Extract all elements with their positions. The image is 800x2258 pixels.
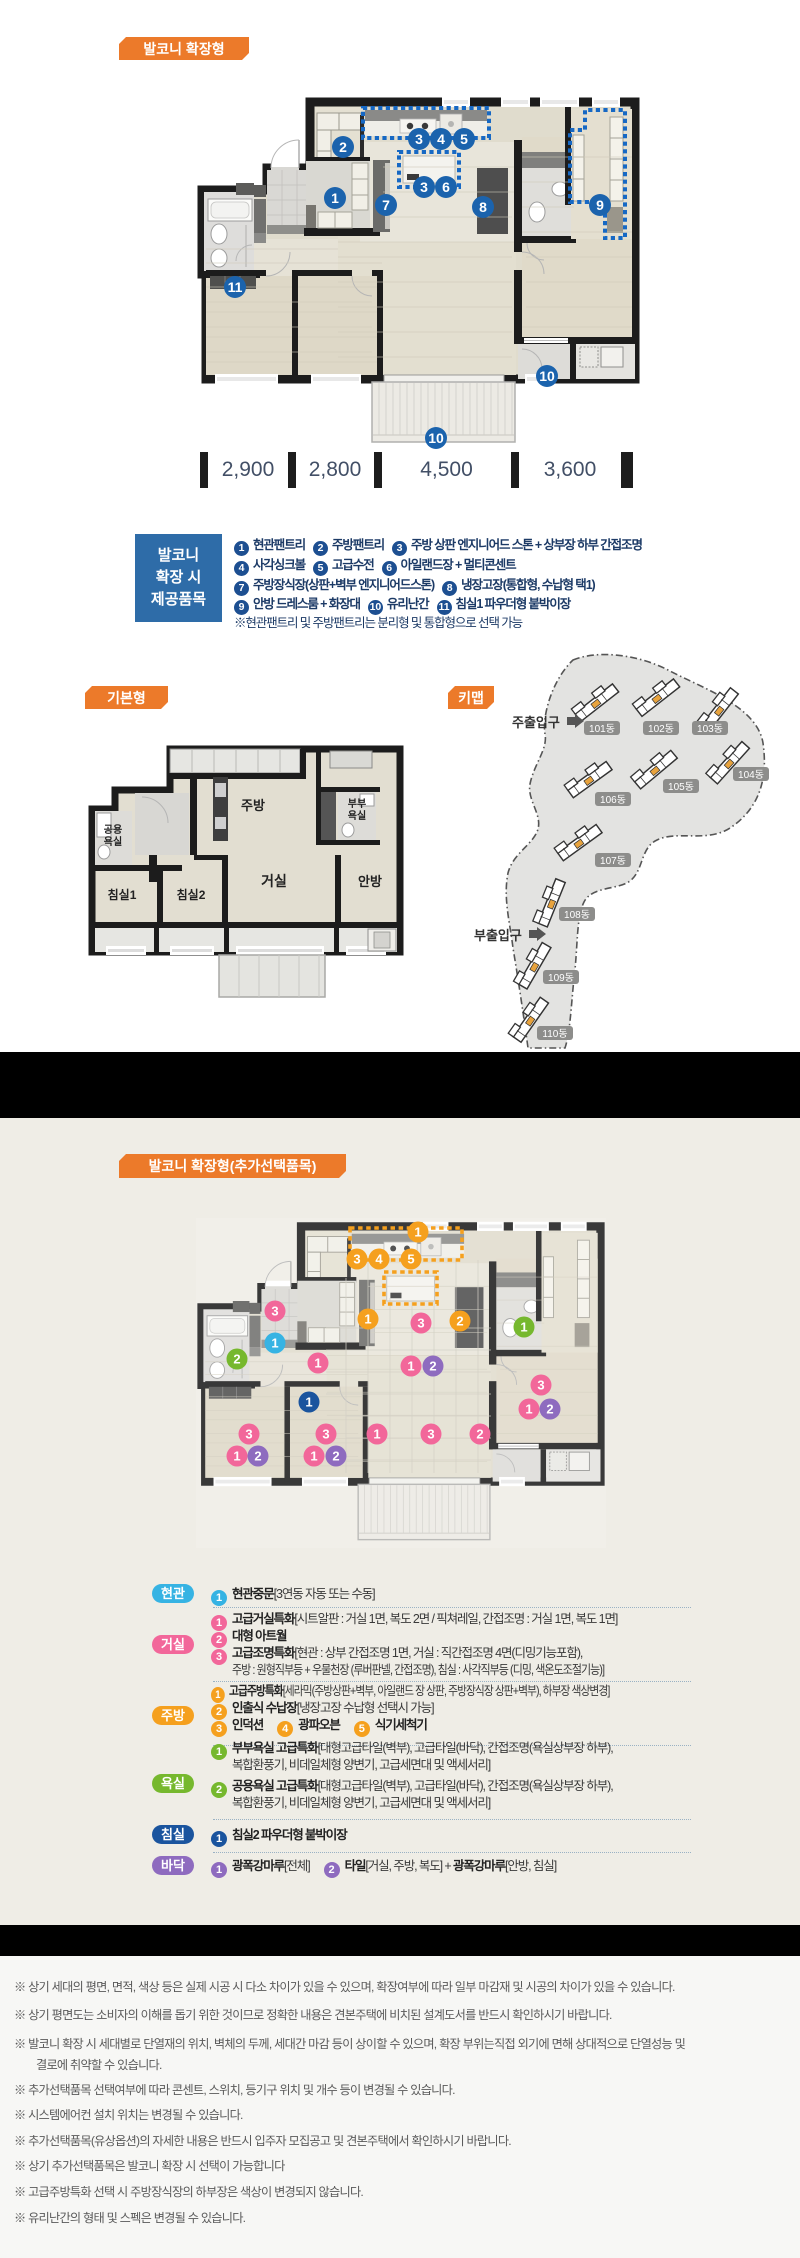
svg-text:3: 3 — [415, 131, 423, 147]
svg-text:101동: 101동 — [589, 723, 615, 735]
svg-text:102동: 102동 — [648, 723, 674, 735]
svg-text:주출입구: 주출입구 — [512, 715, 560, 730]
svg-text:침실2: 침실2 — [177, 887, 206, 902]
svg-text:110동: 110동 — [542, 1028, 567, 1040]
svg-text:공용: 공용 — [104, 824, 122, 836]
svg-text:5: 5 — [460, 131, 468, 147]
svg-text:1: 1 — [331, 190, 339, 206]
svg-text:9: 9 — [596, 197, 604, 213]
svg-text:7: 7 — [382, 197, 390, 213]
svg-text:6: 6 — [442, 179, 450, 195]
svg-text:부출입구: 부출입구 — [474, 928, 522, 943]
svg-text:107동: 107동 — [600, 855, 626, 867]
svg-text:욕실: 욕실 — [104, 835, 122, 848]
svg-text:105동: 105동 — [668, 781, 694, 793]
svg-text:109동: 109동 — [548, 972, 574, 984]
svg-text:11: 11 — [228, 279, 243, 295]
svg-text:욕실: 욕실 — [348, 809, 366, 822]
svg-text:106동: 106동 — [600, 794, 626, 806]
svg-text:2: 2 — [339, 139, 347, 155]
svg-text:108동: 108동 — [564, 909, 590, 921]
svg-text:부부: 부부 — [348, 798, 366, 810]
svg-text:103동: 103동 — [697, 723, 723, 735]
svg-text:10: 10 — [428, 430, 444, 446]
svg-text:10: 10 — [539, 368, 555, 384]
svg-text:거실: 거실 — [261, 873, 287, 889]
svg-text:주방: 주방 — [241, 798, 265, 813]
svg-text:4: 4 — [437, 131, 445, 147]
svg-text:침실1: 침실1 — [108, 887, 137, 902]
svg-text:8: 8 — [479, 199, 487, 215]
svg-text:104동: 104동 — [738, 769, 764, 781]
svg-text:안방: 안방 — [358, 874, 382, 889]
svg-text:3: 3 — [420, 179, 428, 195]
